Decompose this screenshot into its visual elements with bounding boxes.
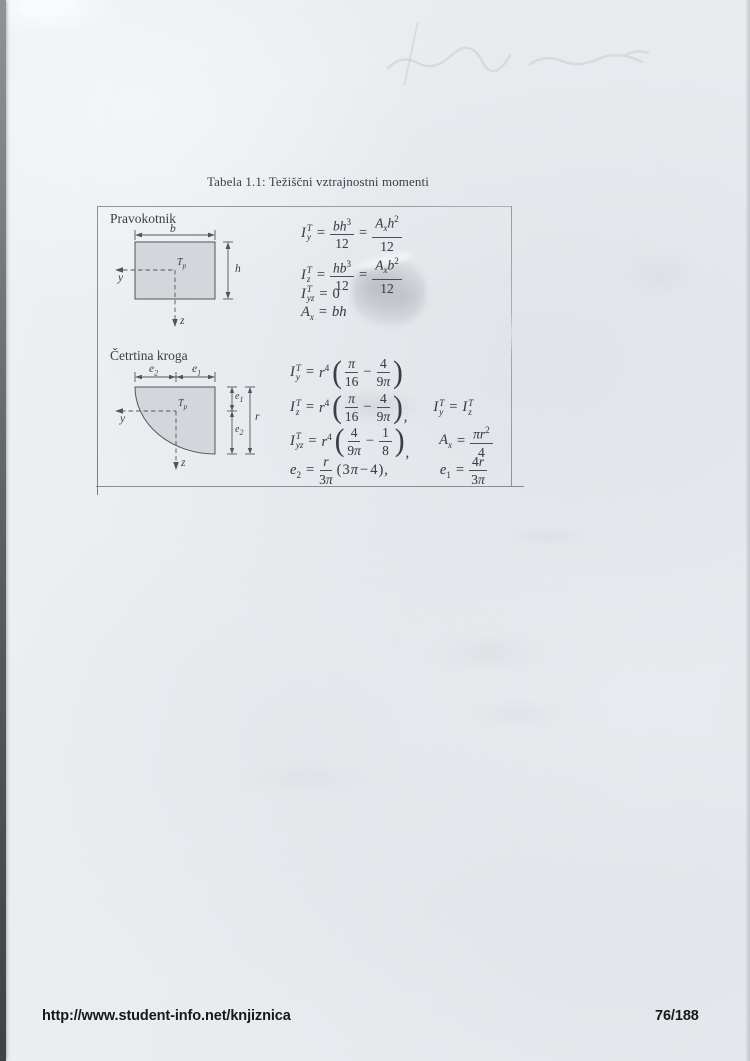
- scan-smudge: [618, 246, 702, 300]
- minus-sign: −: [363, 364, 371, 381]
- equals-sign: =: [317, 267, 325, 284]
- rectangle-diagram-drawing: [107, 226, 272, 348]
- minus-sign: −: [366, 433, 374, 450]
- right-paren: ): [395, 426, 405, 456]
- moment-symbol: ITz: [462, 399, 473, 417]
- dimension-label-h: h: [235, 264, 241, 275]
- formula-rect-Iyz: ITyz = 0: [301, 285, 340, 303]
- table-border-top: [97, 206, 512, 207]
- left-paren: (: [335, 426, 345, 456]
- footer-url: http://www.student-info.net/knjiznica: [42, 1008, 291, 1024]
- axis-label-z: z: [180, 316, 184, 327]
- table-border-left: [97, 206, 98, 495]
- right-paren: ): [393, 392, 403, 422]
- quarter-circle-drawing: [107, 364, 277, 482]
- dimension-label-b: b: [170, 224, 176, 235]
- value: bh: [332, 304, 347, 321]
- moment-symbol: ITy: [433, 399, 444, 417]
- equals-sign: =: [457, 433, 465, 450]
- dimension-label-e1-right: e1: [235, 391, 243, 405]
- centroid-label: Tp: [177, 257, 186, 272]
- equals-sign: =: [317, 225, 325, 242]
- quarter-circle-shape: [135, 387, 215, 454]
- equals-sign: =: [456, 462, 464, 479]
- scanned-page: Tabela 1.1: Težiščni vztrajnostni moment…: [0, 0, 750, 1061]
- moment-symbol: ITy: [301, 224, 312, 242]
- dimension-label-r: r: [255, 412, 259, 423]
- formula-quarter-Iz: ITz = r4 ( π16 − 49π ) , ITy = ITz: [290, 391, 473, 424]
- equals-sign: =: [319, 304, 327, 321]
- fraction: r3π: [319, 454, 333, 487]
- formula-quarter-e: e2 = r3π (3π−4), e1 = 4r3π: [290, 454, 487, 487]
- dimension-label-e1: e1: [192, 364, 201, 378]
- fraction: bh312: [330, 215, 354, 252]
- formula-quarter-Iy: ITy = r4 ( π16 − 49π ): [290, 356, 402, 389]
- left-paren: (: [332, 392, 342, 422]
- fraction: 49π: [377, 356, 391, 389]
- equals-sign: =: [359, 267, 367, 284]
- coefficient: r4: [322, 432, 332, 451]
- axis-label-y: y: [118, 273, 123, 284]
- area-symbol: Ax: [439, 432, 452, 450]
- equals-sign: =: [306, 462, 314, 479]
- area-symbol: Ax: [301, 304, 314, 322]
- scan-edge-left: [0, 0, 6, 1061]
- parenthesized-term: (3π−4),: [337, 462, 388, 479]
- quarter-circle-diagram: e2 e1 y z Tp e1 e2 r: [107, 364, 277, 482]
- scan-edge-right: [745, 0, 750, 1061]
- left-paren: (: [332, 357, 342, 387]
- fraction: 4r3π: [469, 454, 487, 487]
- axis-label-z: z: [181, 458, 185, 469]
- scan-smudge: [468, 698, 572, 730]
- rectangle-diagram: b h y z Tp: [107, 226, 272, 348]
- moment-symbol: ITz: [290, 399, 301, 417]
- equals-sign: =: [319, 286, 327, 303]
- scan-smudge: [500, 528, 592, 546]
- scan-corner-notch: [15, 0, 79, 18]
- coefficient: r4: [319, 363, 329, 382]
- dimension-label-e2-right: e2: [235, 424, 243, 438]
- fraction: Axb212: [372, 254, 402, 296]
- formula-rect-area: Ax = bh: [301, 304, 347, 322]
- table-border-right: [511, 206, 512, 487]
- moment-symbol: ITyz: [290, 432, 303, 450]
- centroid-distance-symbol: e1: [440, 462, 451, 480]
- faint-pencil-scribbles: [380, 42, 670, 84]
- fraction: 49π: [377, 391, 391, 424]
- equals-sign: =: [449, 399, 457, 416]
- equals-sign: =: [306, 364, 314, 381]
- centroid-label: Tp: [178, 398, 187, 413]
- scan-smudge: [238, 762, 380, 794]
- section-label-cetrtina-kroga: Četrtina kroga: [110, 348, 188, 364]
- moment-symbol: ITy: [290, 364, 301, 382]
- coefficient: r4: [319, 398, 329, 417]
- fraction: π16: [345, 356, 359, 389]
- formula-rect-Iy: ITy = bh312 = Axh212: [301, 212, 402, 254]
- equals-sign: =: [359, 225, 367, 242]
- fraction: π16: [345, 391, 359, 424]
- moment-symbol: ITyz: [301, 285, 314, 303]
- fraction: Axh212: [372, 212, 402, 254]
- table-caption: Tabela 1.1: Težiščni vztrajnostni moment…: [207, 174, 429, 190]
- fraction: 18: [379, 425, 392, 458]
- right-paren: ): [393, 357, 403, 387]
- fraction: 49π: [347, 425, 361, 458]
- page-number: 76/188: [655, 1008, 699, 1024]
- centroid-distance-symbol: e2: [290, 462, 301, 480]
- data-table: Pravokotnik: [97, 206, 511, 487]
- dimension-label-e2: e2: [149, 364, 158, 378]
- value-zero: 0: [333, 286, 340, 303]
- axis-label-y: y: [120, 414, 125, 425]
- section-label-pravokotnik: Pravokotnik: [110, 211, 176, 227]
- moment-symbol: ITz: [301, 266, 312, 284]
- equals-sign: =: [308, 433, 316, 450]
- equals-sign: =: [306, 399, 314, 416]
- scan-smudge: [428, 632, 552, 674]
- minus-sign: −: [363, 399, 371, 416]
